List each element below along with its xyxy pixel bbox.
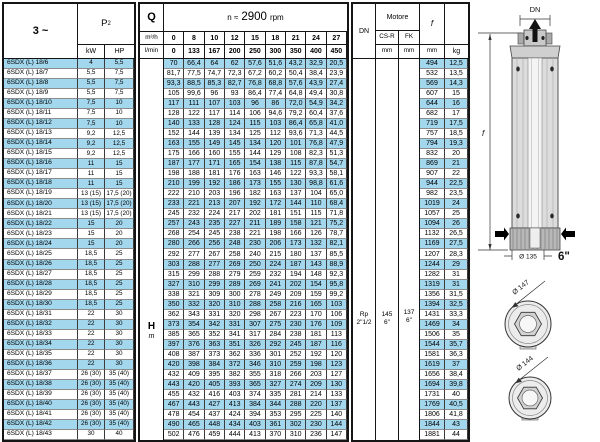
head-cell: 225 <box>306 410 326 420</box>
head-cell: 140 <box>327 410 347 420</box>
head-cell: 181 <box>306 330 326 340</box>
head-cell: 121 <box>306 219 326 229</box>
f-cell: 907 <box>420 169 445 179</box>
head-cell: 343 <box>184 310 204 320</box>
kg-cell: 31,5 <box>445 290 468 300</box>
model-cell: 6SDX (L) 18/31 <box>4 310 78 320</box>
head-table-header: Q m³/h l/min n ≈ 2900 rpm 08101215182124… <box>140 4 347 59</box>
head-cell: 159 <box>306 290 326 300</box>
head-cell: 115 <box>245 119 265 129</box>
head-cell: 110 <box>306 199 326 209</box>
head-cell: 210 <box>184 189 204 199</box>
head-cell: 432 <box>164 370 184 380</box>
body-bolt-bl <box>516 214 520 219</box>
head-cell: 106 <box>327 310 347 320</box>
head-cell: 222 <box>164 189 184 199</box>
head-cell: 192 <box>245 199 265 209</box>
f-cell: 1431 <box>420 310 445 320</box>
head-cell: 144 <box>184 129 204 139</box>
model-cell: 6SDX (L) 18/42 <box>4 420 78 430</box>
head-cell: 103 <box>327 300 347 310</box>
head-cell: 202 <box>286 280 306 290</box>
model-cell: 6SDX (L) 18/9 <box>4 89 78 99</box>
head-cell: 245 <box>205 229 225 239</box>
head-cell: 152 <box>164 129 184 139</box>
model-cell: 6SDX (L) 18/14 <box>4 139 78 149</box>
hp-cell: 7,5 <box>105 89 134 99</box>
f-cell: 1019 <box>420 199 445 209</box>
m3h-label: m³/h <box>140 32 164 45</box>
intake-arrow-left <box>495 228 509 241</box>
head-cell: 213 <box>205 199 225 209</box>
lmin-value: 450 <box>327 45 347 58</box>
f-cell: 1769 <box>420 400 445 410</box>
model-cell: 6SDX (L) 18/40 <box>4 400 78 410</box>
head-cell: 387 <box>184 350 204 360</box>
head-cell: 43,9 <box>306 79 326 89</box>
f-cell: 1132 <box>420 229 445 239</box>
f-cell: 532 <box>420 69 445 79</box>
kw-header: kW <box>78 45 105 58</box>
csr-value-line2: 6" <box>376 319 398 327</box>
head-cell: 284 <box>266 330 286 340</box>
f-cell: 1881 <box>420 430 445 440</box>
head-cell: 37,6 <box>327 109 347 119</box>
head-cell: 106 <box>245 109 265 119</box>
dimension-table-header: DN Motore CS-R FK mm mm f mm kg <box>353 4 468 59</box>
head-cell: 75,2 <box>327 219 347 229</box>
head-cell: 88,9 <box>327 260 347 270</box>
head-cell: 57,6 <box>245 59 265 69</box>
head-cell: 374 <box>245 390 265 400</box>
head-cell: 341 <box>225 330 245 340</box>
dn-value-line2: 2"1/2 <box>353 319 375 327</box>
head-cell: 154 <box>306 280 326 290</box>
head-cell: 307 <box>245 320 265 330</box>
p2-sub: 2 <box>108 21 111 27</box>
kw-cell: 26 (30) <box>78 390 105 400</box>
motore-header: Motore <box>376 4 420 31</box>
h-unit: m <box>140 333 163 341</box>
head-cell: 71,3 <box>306 129 326 139</box>
head-cell: 299 <box>205 280 225 290</box>
f-mm-label: mm <box>420 45 445 58</box>
kg-cell: 21 <box>445 159 468 169</box>
intake-center <box>530 228 540 248</box>
hp-cell: 7,5 <box>105 79 134 89</box>
head-cell: 126 <box>306 229 326 239</box>
model-cell: 6SDX (L) 18/10 <box>4 99 78 109</box>
head-cell: 187 <box>164 159 184 169</box>
kw-cell: 9,2 <box>78 129 105 139</box>
kg-cell: 43 <box>445 420 468 430</box>
fk-value-line2: 6" <box>399 317 419 325</box>
head-cell: 77,5 <box>184 69 204 79</box>
head-cell: 203 <box>205 189 225 199</box>
head-cell: 224 <box>266 260 286 270</box>
head-cell: 248 <box>225 239 245 249</box>
f-cell: 569 <box>420 79 445 89</box>
model-cell: 6SDX (L) 18/26 <box>4 260 78 270</box>
hp-cell: 20 <box>105 219 134 229</box>
kw-cell: 4 <box>78 59 105 69</box>
head-cell: 138 <box>266 159 286 169</box>
head-cell: 299 <box>184 270 204 280</box>
head-cell: 448 <box>205 420 225 430</box>
head-cell: 140 <box>164 119 184 129</box>
head-cell: 64 <box>205 59 225 69</box>
f-cell: 644 <box>420 99 445 109</box>
csr-mm-label: mm <box>376 45 399 58</box>
model-cell: 6SDX (L) 18/33 <box>4 330 78 340</box>
head-cell: 188 <box>184 169 204 179</box>
head-cell: 71,8 <box>327 209 347 219</box>
head-cell: 424 <box>225 410 245 420</box>
head-cell: 295 <box>286 410 306 420</box>
head-cell: 443 <box>164 380 184 390</box>
hp-cell: 17,5 (20) <box>105 189 134 199</box>
head-cell: 209 <box>286 290 306 300</box>
hp-cell: 12,5 <box>105 149 134 159</box>
kg-cell: 28,3 <box>445 249 468 259</box>
head-cell: 372 <box>225 360 245 370</box>
lmin-label: l/min <box>140 45 164 58</box>
head-cell: 173 <box>286 239 306 249</box>
f-cell: 794 <box>420 139 445 149</box>
kw-cell: 11 <box>78 159 105 169</box>
head-cell: 259 <box>286 360 306 370</box>
m3h-value: 8 <box>184 32 204 45</box>
pump-diagram: DN f Ø 135 6" Ø 147 Ø 144 <box>470 0 600 442</box>
head-cell: 342 <box>205 320 225 330</box>
lmin-value: 133 <box>184 45 204 58</box>
flow-body: H m 7066,4646257,651,643,232,920,581,777… <box>140 59 347 440</box>
head-cell: 60,2 <box>266 69 286 79</box>
head-cell: 232 <box>266 270 286 280</box>
head-cell: 250 <box>245 260 265 270</box>
head-cell: 211 <box>245 219 265 229</box>
f-cell: 1282 <box>420 270 445 280</box>
head-cell: 320 <box>225 310 245 320</box>
m3h-value: 15 <box>245 32 265 45</box>
head-cell: 177 <box>184 159 204 169</box>
head-table: Q m³/h l/min n ≈ 2900 rpm 08101215182124… <box>138 2 349 442</box>
kg-cell: 40,5 <box>445 400 468 410</box>
kg-cell: 17,5 <box>445 119 468 129</box>
head-cell: 207 <box>225 199 245 209</box>
head-cell: 166 <box>184 149 204 159</box>
head-cell: 405 <box>205 380 225 390</box>
head-cell: 240 <box>245 249 265 259</box>
head-cell: 327 <box>164 280 184 290</box>
kg-cell: 38,4 <box>445 370 468 380</box>
head-cell: 163 <box>245 169 265 179</box>
d147-label: Ø 147 <box>511 279 530 296</box>
head-cell: 416 <box>205 390 225 400</box>
f-cell: 1544 <box>420 340 445 350</box>
f-cell: 1469 <box>420 320 445 330</box>
size-6in-label: 6" <box>558 251 570 263</box>
head-cell: 454 <box>184 410 204 420</box>
head-cell: 459 <box>205 430 225 440</box>
head-cell: 315 <box>164 270 184 280</box>
head-cell: 86 <box>266 99 286 109</box>
head-cell: 243 <box>184 219 204 229</box>
f-cell: 1844 <box>420 420 445 430</box>
model-cell: 6SDX (L) 18/6 <box>4 59 78 69</box>
head-cell: 256 <box>205 239 225 249</box>
head-cell: 467 <box>164 400 184 410</box>
kw-cell: 22 <box>78 310 105 320</box>
head-cell: 186 <box>225 179 245 189</box>
hp-cell: 10 <box>105 119 134 129</box>
kw-cell: 26 (30) <box>78 400 105 410</box>
hp-cell: 12,5 <box>105 139 134 149</box>
f-cell: 1207 <box>420 249 445 259</box>
hp-cell: 7,5 <box>105 69 134 79</box>
head-cell: 137 <box>327 400 347 410</box>
head-cell: 117 <box>164 99 184 109</box>
f-arrow-bottom <box>488 244 491 250</box>
head-cell: 310 <box>286 430 306 440</box>
kw-cell: 26 (30) <box>78 410 105 420</box>
hp-cell: 35 (40) <box>105 420 134 430</box>
head-cell: 223 <box>286 310 306 320</box>
head-cell: 373 <box>205 350 225 360</box>
head-cell: 155 <box>266 179 286 189</box>
model-cell: 6SDX (L) 18/7 <box>4 69 78 79</box>
head-cell: 238 <box>286 330 306 340</box>
head-cell: 172 <box>266 199 286 209</box>
head-cell: 403 <box>225 390 245 400</box>
head-cell: 203 <box>306 370 326 380</box>
head-cell: 277 <box>205 260 225 270</box>
kg-cell: 24 <box>445 199 468 209</box>
head-cell: 310 <box>225 300 245 310</box>
head-cell: 76,8 <box>245 79 265 89</box>
head-cell: 107 <box>205 99 225 109</box>
f-cell: 1506 <box>420 330 445 340</box>
head-cell: 68,8 <box>266 79 286 89</box>
head-cell: 249 <box>266 290 286 300</box>
head-cell: 60,4 <box>306 109 326 119</box>
model-cell: 6SDX (L) 18/19 <box>4 189 78 199</box>
head-cell: 288 <box>205 270 225 280</box>
hp-cell: 10 <box>105 99 134 109</box>
kw-cell: 26 (30) <box>78 380 105 390</box>
head-cell: 288 <box>245 300 265 310</box>
head-cell: 176 <box>225 169 245 179</box>
head-cell: 320 <box>205 300 225 310</box>
head-cell: 77,4 <box>266 89 286 99</box>
head-cell: 57,6 <box>286 79 306 89</box>
head-cell: 245 <box>164 209 184 219</box>
kg-cell: 36,3 <box>445 350 468 360</box>
pump-shaft-channel <box>528 58 542 228</box>
head-cell: 128 <box>164 109 184 119</box>
kw-cell: 7,5 <box>78 109 105 119</box>
head-cell: 72,3 <box>225 69 245 79</box>
head-cell: 160 <box>205 149 225 159</box>
head-cell: 220 <box>306 400 326 410</box>
head-cell: 215 <box>266 249 286 259</box>
kg-cell: 16 <box>445 99 468 109</box>
hp-cell: 40 <box>105 430 134 440</box>
hp-cell: 10 <box>105 109 134 119</box>
kw-cell: 18,5 <box>78 290 105 300</box>
model-cell: 6SDX (L) 18/39 <box>4 390 78 400</box>
head-cell: 326 <box>245 340 265 350</box>
head-cell: 230 <box>306 420 326 430</box>
head-cell: 275 <box>266 320 286 330</box>
head-cell: 166 <box>286 229 306 239</box>
model-cell: 6SDX (L) 18/36 <box>4 360 78 370</box>
model-cell: 6SDX (L) 18/43 <box>4 430 78 440</box>
lmin-value: 200 <box>225 45 245 58</box>
head-cell: 27,4 <box>327 79 347 89</box>
head-cell: 171 <box>205 159 225 169</box>
head-cell: 385 <box>164 330 184 340</box>
kw-cell: 13 (15) <box>78 189 105 199</box>
hp-cell: 30 <box>105 310 134 320</box>
head-cell: 87,8 <box>306 159 326 169</box>
head-cell: 144 <box>286 199 306 209</box>
p2-label: P2 <box>78 4 134 45</box>
kw-cell: 15 <box>78 229 105 239</box>
head-cell: 331 <box>225 320 245 330</box>
head-cell: 258 <box>266 300 286 310</box>
fk-mm-label: mm <box>399 45 420 58</box>
head-cell: 98,8 <box>306 179 326 189</box>
f-cell: 719 <box>420 119 445 129</box>
head-cell: 41,0 <box>327 119 347 129</box>
head-cell: 65,8 <box>306 119 326 129</box>
head-cell: 170 <box>306 310 326 320</box>
head-cell: 96 <box>245 99 265 109</box>
head-cell: 236 <box>306 430 326 440</box>
lmin-value: 250 <box>245 45 265 58</box>
head-cell: 122 <box>184 109 204 119</box>
head-cell: 408 <box>164 350 184 360</box>
head-cell: 70 <box>164 59 184 69</box>
diagram-dn-label: DN <box>530 5 541 14</box>
head-cell: 434 <box>225 420 245 430</box>
head-cell: 43,2 <box>286 59 306 69</box>
model-cell: 6SDX (L) 18/25 <box>4 249 78 259</box>
hp-cell: 35 (40) <box>105 400 134 410</box>
f-cell: 1319 <box>420 280 445 290</box>
head-cell: 413 <box>245 430 265 440</box>
head-cell: 23,9 <box>327 69 347 79</box>
kw-cell: 22 <box>78 340 105 350</box>
head-cell: 189 <box>266 219 286 229</box>
head-cell: 332 <box>184 300 204 310</box>
head-cell: 85,3 <box>205 79 225 89</box>
f-cell: 832 <box>420 149 445 159</box>
kg-cell: 14,3 <box>445 79 468 89</box>
kw-cell: 15 <box>78 219 105 229</box>
head-cell: 120 <box>266 139 286 149</box>
f-cell: 1806 <box>420 410 445 420</box>
outlet-lug-right <box>546 33 552 44</box>
hp-cell: 30 <box>105 350 134 360</box>
head-cell: 58,1 <box>327 169 347 179</box>
m3h-value: 27 <box>327 32 347 45</box>
head-cell: 132 <box>306 239 326 249</box>
head-cell: 187 <box>286 260 306 270</box>
d135-label: Ø 135 <box>519 254 537 261</box>
fk-header: FK <box>399 31 420 45</box>
head-cell: 335 <box>266 390 286 400</box>
f-cell: 1694 <box>420 380 445 390</box>
head-cell: 79,2 <box>286 109 306 119</box>
head-cell: 230 <box>245 239 265 249</box>
head-cell: 502 <box>164 430 184 440</box>
kg-cell: 31 <box>445 280 468 290</box>
head-cell: 198 <box>164 169 184 179</box>
csr-value: 145 6" <box>376 311 398 327</box>
kg-cell: 29 <box>445 260 468 270</box>
kg-cell: 17 <box>445 109 468 119</box>
kw-cell: 5,5 <box>78 69 105 79</box>
model-cell: 6SDX (L) 18/12 <box>4 119 78 129</box>
head-cell: 123 <box>327 360 347 370</box>
head-cell: 175 <box>164 149 184 159</box>
power-table-header: 3 ~ P2 kW HP <box>4 4 134 59</box>
kg-cell: 32,5 <box>445 300 468 310</box>
lmin-value: 167 <box>205 45 225 58</box>
cap-bolt-left <box>525 36 528 40</box>
model-cell: 6SDX (L) 18/27 <box>4 270 78 280</box>
head-cell: 128 <box>205 119 225 129</box>
f-cell: 982 <box>420 189 445 199</box>
head-cell: 155 <box>225 149 245 159</box>
hp-cell: 25 <box>105 260 134 270</box>
head-cell: 173 <box>245 179 265 189</box>
head-cell: 68,4 <box>327 199 347 209</box>
kw-cell: 13 (15) <box>78 209 105 219</box>
kw-cell: 7,5 <box>78 119 105 129</box>
head-cell: 397 <box>164 340 184 350</box>
head-cell: 81,7 <box>164 69 184 79</box>
dn-value-line1: Rp <box>353 311 375 319</box>
head-cell: 137 <box>286 189 306 199</box>
hp-cell: 5,5 <box>105 59 134 69</box>
head-cell: 202 <box>245 209 265 219</box>
head-cell: 393 <box>225 380 245 390</box>
head-cell: 93,3 <box>306 169 326 179</box>
f-cell: 1057 <box>420 209 445 219</box>
head-cell: 279 <box>225 270 245 280</box>
head-cell: 365 <box>245 380 265 390</box>
head-cell: 292 <box>164 249 184 259</box>
head-cell: 278 <box>245 290 265 300</box>
head-cell: 65,0 <box>327 189 347 199</box>
head-cell: 108 <box>286 149 306 159</box>
circle147-bore <box>520 316 537 333</box>
head-cell: 111 <box>184 99 204 109</box>
kg-cell: 39,8 <box>445 380 468 390</box>
kw-cell: 18,5 <box>78 280 105 290</box>
rpm-value: 2900 <box>241 12 267 24</box>
m3h-value: 21 <box>286 32 306 45</box>
head-cell: 254 <box>184 229 204 239</box>
body-bolt-tl <box>516 67 520 72</box>
kg-cell: 41,8 <box>445 410 468 420</box>
head-cell: 409 <box>184 370 204 380</box>
head-cell: 165 <box>306 300 326 310</box>
head-cell: 478 <box>164 410 184 420</box>
